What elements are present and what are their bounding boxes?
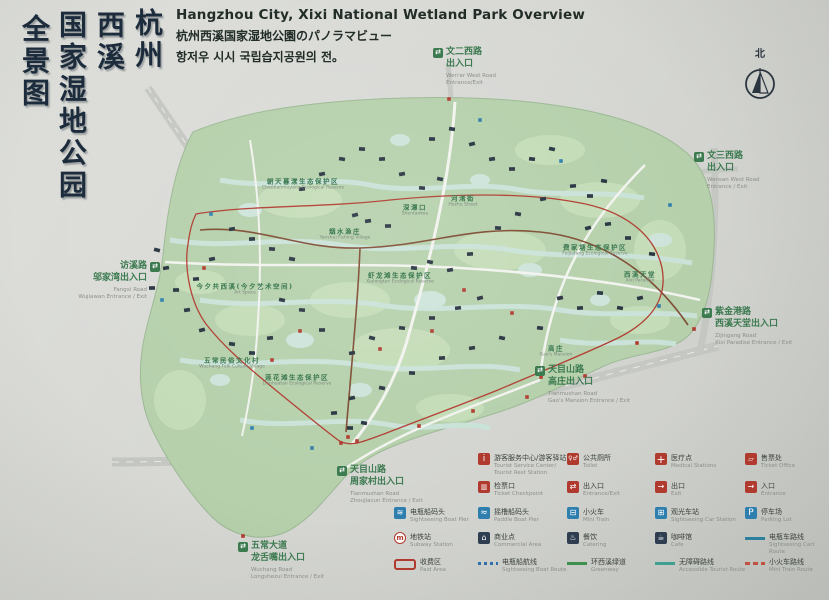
legend-label-en: Paid Area bbox=[420, 567, 446, 574]
building-mark bbox=[605, 222, 611, 226]
legend-label-en: Cafe bbox=[671, 542, 692, 549]
ticket-checkpoint-icon: ▥ bbox=[478, 481, 490, 493]
legend-item: ⊟小火车Mini Train bbox=[567, 507, 609, 524]
poi-blue-icon bbox=[160, 298, 164, 302]
legend-label-en: Commercial Area bbox=[494, 542, 541, 549]
vertical-title-overview: 全景图 bbox=[14, 14, 54, 110]
building-mark bbox=[439, 356, 445, 360]
entrance-road-name: 五常大道 bbox=[251, 542, 287, 552]
parking-icon: P bbox=[745, 507, 757, 519]
tourist-service-icon: i bbox=[478, 453, 490, 465]
map-region-label: 烟水渔庄Yanshui Fishing Village bbox=[320, 226, 371, 241]
boat-route-line bbox=[478, 562, 498, 565]
legend-item: ♀♂公共厕所Toilet bbox=[567, 453, 611, 470]
entrance-gate-name: 龙舌嘴出入口 bbox=[251, 554, 324, 564]
poi-red-icon bbox=[270, 358, 274, 362]
legend-label-zh: 出口 bbox=[671, 481, 685, 491]
building-mark bbox=[419, 186, 425, 190]
poi-red-icon bbox=[339, 441, 343, 445]
legend-item: 收费区Paid Area bbox=[394, 557, 446, 574]
poi-red-icon bbox=[346, 435, 350, 439]
building-mark bbox=[299, 308, 305, 312]
legend-item: +医疗点Medical Stations bbox=[655, 453, 716, 470]
map-region-label: 河渚街Hezhu Street bbox=[448, 193, 477, 208]
legend-label-en: Mini Train bbox=[583, 517, 609, 524]
entrance-road-name: 天目山路 bbox=[350, 466, 386, 476]
sightseeing-car-icon: ⊞ bbox=[655, 507, 667, 519]
entrance-english: Zijingang RoadXixi Paradise Entrance / E… bbox=[715, 333, 792, 348]
poi-red-icon bbox=[241, 534, 245, 538]
legend-label-zh: 摇橹船码头 bbox=[494, 507, 539, 517]
entrance-road-name: 天目山路 bbox=[548, 366, 584, 376]
commercial-icon: ⌂ bbox=[478, 532, 490, 544]
north-label: 北 bbox=[737, 50, 783, 60]
entrance-road-name: 文三西路 bbox=[707, 152, 743, 162]
building-mark bbox=[319, 328, 325, 332]
legend-label-en: Sightseeing Boat Pier bbox=[410, 517, 469, 524]
building-mark bbox=[154, 248, 161, 253]
legend-label-zh: 咖啡馆 bbox=[671, 532, 692, 542]
poi-blue-icon bbox=[668, 203, 672, 207]
legend-label-en: Toilet bbox=[583, 463, 611, 470]
poi-blue-icon bbox=[310, 446, 314, 450]
mini-train-icon: ⊟ bbox=[567, 507, 579, 519]
building-mark bbox=[570, 184, 576, 188]
legend-label-zh: 电瓶船码头 bbox=[410, 507, 469, 517]
paddle-boat-pier-icon: ≈ bbox=[478, 507, 490, 519]
poi-red-icon bbox=[355, 439, 359, 443]
map-region-label: 朝天暮漾生态保护区Chaotianmuyang Ecological Reser… bbox=[262, 176, 344, 191]
legend-item: m地铁站Subway Station bbox=[394, 532, 453, 549]
building-mark bbox=[597, 291, 603, 295]
entrance-exit-icon: ⇄ bbox=[535, 366, 545, 376]
building-mark bbox=[509, 167, 515, 171]
paid-area-symbol bbox=[394, 559, 416, 570]
legend-label-zh: 观光车站 bbox=[671, 507, 736, 517]
entrance-exit-icon: ⇄ bbox=[567, 481, 579, 493]
map-region-label: 虾龙滩生态保护区Xialongtan Ecological Reserve bbox=[366, 270, 434, 285]
legend-item: →出口Exit bbox=[655, 481, 685, 498]
legend-label-en: Exit bbox=[671, 491, 685, 498]
building-mark bbox=[385, 224, 391, 228]
legend-label-zh: 公共厕所 bbox=[583, 453, 611, 463]
poi-red-icon bbox=[525, 395, 529, 399]
page-title: Hangzhou City, Xixi National Wetland Par… bbox=[176, 7, 585, 65]
legend-item: 小火车路线Mini Train Route bbox=[745, 557, 813, 574]
building-mark bbox=[529, 157, 535, 161]
legend-item: ⊞观光车站Sightseeing Car Station bbox=[655, 507, 736, 524]
legend-label-zh: 电瓶船航线 bbox=[502, 557, 566, 567]
map-region-label: 西溪天堂Xixi Paradise bbox=[624, 269, 656, 284]
entrance-exit-icon: ⇄ bbox=[337, 466, 347, 476]
entrance-label: ⇄文二西路出入口Wen'er West RoadEntrance/Exit bbox=[433, 48, 496, 88]
entrance-label: ⇄文三西路出入口Wensan West RoadEntrance / Exit bbox=[694, 152, 760, 192]
building-mark bbox=[625, 236, 631, 240]
entrance-icon: → bbox=[745, 481, 757, 493]
entrance-gate-name: 高庄出入口 bbox=[548, 378, 630, 388]
legend-label-en: Sightseeing Boat Route bbox=[502, 567, 566, 574]
legend-label-en: Accessible Tourist Route bbox=[679, 567, 745, 574]
building-mark bbox=[249, 237, 255, 241]
legend-label-zh: 餐饮 bbox=[583, 532, 607, 542]
building-mark bbox=[455, 306, 461, 310]
mini-train-route-line bbox=[745, 562, 765, 565]
building-mark bbox=[379, 157, 385, 161]
legend-label-zh: 收费区 bbox=[420, 557, 446, 567]
building-mark bbox=[537, 326, 543, 330]
legend-item: ⇄出入口Entrance/Exit bbox=[567, 481, 620, 498]
legend-item: 电瓶车路线Sightseeing Cart Route bbox=[745, 532, 829, 556]
entrance-exit-icon: ⇄ bbox=[702, 308, 712, 318]
poi-blue-icon bbox=[559, 159, 563, 163]
legend-item: 无障碍路线Accessible Tourist Route bbox=[655, 557, 745, 574]
entrance-gate-name: 西溪天堂出入口 bbox=[715, 320, 792, 330]
compass: 北 bbox=[737, 50, 783, 110]
park-sign-board: Hangzhou City, Xixi National Wetland Par… bbox=[0, 0, 829, 600]
cafe-icon: ☕ bbox=[655, 532, 667, 544]
north-arrow-icon bbox=[737, 60, 783, 106]
entrance-exit-icon: ⇄ bbox=[150, 262, 160, 272]
entrance-english: Tianmushan RoadGao's Mansion Entrance / … bbox=[548, 391, 630, 406]
entrance-label: ⇄紫金港路西溪天堂出入口Zijingang RoadXixi Paradise … bbox=[702, 308, 792, 348]
building-mark bbox=[267, 336, 273, 340]
building-mark bbox=[359, 147, 365, 151]
legend-label-zh: 环西溪绿道 bbox=[591, 557, 626, 567]
legend-item: ≈摇橹船码头Paddle Boat Pier bbox=[478, 507, 539, 524]
legend-item: 环西溪绿道Greenway bbox=[567, 557, 626, 574]
vertical-title-national-wetland-park: 国家湿地公园 bbox=[51, 10, 91, 202]
medical-icon: + bbox=[655, 453, 667, 465]
title-japanese: 杭州西溪国家湿地公園のパノラマビュー bbox=[176, 27, 585, 44]
legend-label-zh: 无障碍路线 bbox=[679, 557, 745, 567]
legend-label-en: Catering bbox=[583, 542, 607, 549]
entrance-exit-icon: ⇄ bbox=[238, 542, 248, 552]
cart-route-line bbox=[745, 537, 765, 540]
building-mark bbox=[269, 247, 275, 251]
legend-label-zh: 游客服务中心/游客驿站 bbox=[494, 453, 566, 463]
sightseeing-boat-pier-icon: ≋ bbox=[394, 507, 406, 519]
legend-item: 电瓶船航线Sightseeing Boat Route bbox=[478, 557, 566, 574]
legend-item: ⌂商业点Commercial Area bbox=[478, 532, 541, 549]
poi-blue-icon bbox=[209, 212, 213, 216]
legend-label-zh: 检票口 bbox=[494, 481, 543, 491]
legend-label-en: Sightseeing Car Station bbox=[671, 517, 736, 524]
entrance-label: 访溪路⇄邬家湾出入口Fangxi RoadWujiawan Entrance /… bbox=[78, 262, 160, 302]
legend-label-en: Parking Lot bbox=[761, 517, 792, 524]
entrance-label: ⇄五常大道龙舌嘴出入口Wuchang RoadLongshezui Entran… bbox=[238, 542, 324, 582]
building-mark bbox=[429, 137, 435, 141]
building-mark bbox=[399, 326, 405, 330]
map-region-label: 深潭口Shentankou bbox=[402, 202, 429, 217]
legend-item: i游客服务中心/游客驿站Tourist Service Center/ Tour… bbox=[478, 453, 566, 477]
title-english: Hangzhou City, Xixi National Wetland Par… bbox=[176, 7, 585, 23]
legend-label-zh: 商业点 bbox=[494, 532, 541, 542]
legend-label-zh: 小火车 bbox=[583, 507, 609, 517]
entrance-label: ⇄天目山路周家村出入口Tianmushan RoadZhoujiacun Ent… bbox=[337, 466, 423, 506]
legend-item: ≋电瓶船码头Sightseeing Boat Pier bbox=[394, 507, 469, 524]
map-region-label: 费家塘生态保护区Feijiatang Ecological Reserve bbox=[562, 242, 627, 257]
poi-red-icon bbox=[298, 329, 302, 333]
legend-item: ♨餐饮Catering bbox=[567, 532, 607, 549]
legend-item: ☕咖啡馆Cafe bbox=[655, 532, 692, 549]
legend-label-en: Ticket Checkpoint bbox=[494, 491, 543, 498]
poi-blue-icon bbox=[657, 304, 661, 308]
legend-label-en: Sightseeing Cart Route bbox=[769, 542, 829, 556]
building-mark bbox=[173, 288, 179, 292]
legend-label-en: Tourist Service Center/ Tourist Rest Sta… bbox=[494, 463, 566, 477]
building-mark bbox=[429, 316, 435, 320]
vertical-title-hangzhou: 杭州 bbox=[127, 8, 167, 72]
legend-label-en: Greenway bbox=[591, 567, 626, 574]
building-mark bbox=[649, 252, 655, 256]
poi-red-icon bbox=[447, 97, 451, 101]
legend-label-en: Subway Station bbox=[410, 542, 453, 549]
poi-blue-icon bbox=[478, 118, 482, 122]
poi-red-icon bbox=[202, 266, 206, 270]
building-mark bbox=[587, 194, 593, 198]
poi-red-icon bbox=[471, 409, 475, 413]
poi-red-icon bbox=[417, 424, 421, 428]
entrance-english: Wensan West RoadEntrance / Exit bbox=[707, 177, 760, 192]
legend-item: ▥检票口Ticket Checkpoint bbox=[478, 481, 543, 498]
building-mark bbox=[409, 371, 415, 375]
entrance-english: Fangxi RoadWujiawan Entrance / Exit bbox=[78, 287, 147, 302]
legend-label-zh: 小火车路线 bbox=[769, 557, 813, 567]
legend-label-zh: 地铁站 bbox=[410, 532, 453, 542]
title-korean: 항저우 시시 국립습지공원의 전。 bbox=[176, 48, 585, 65]
park-area bbox=[140, 97, 714, 538]
map-region-label: 莲花滩生态保护区Lianhuatan Ecological Reserve bbox=[263, 372, 332, 387]
legend-label-zh: 电瓶车路线 bbox=[769, 532, 829, 542]
entrance-english: Wen'er West RoadEntrance/Exit bbox=[446, 73, 496, 88]
exit-icon: → bbox=[655, 481, 667, 493]
poi-red-icon bbox=[462, 288, 466, 292]
ticket-office-icon: ▱ bbox=[745, 453, 757, 465]
building-mark bbox=[331, 411, 337, 415]
legend-item: →入口Entrance bbox=[745, 481, 786, 498]
entrance-road-name: 文二西路 bbox=[446, 48, 482, 58]
legend-label-en: Entrance/Exit bbox=[583, 491, 620, 498]
vertical-title-xixi: 西溪 bbox=[89, 10, 129, 74]
legend-label-zh: 入口 bbox=[761, 481, 786, 491]
legend-label-zh: 停车场 bbox=[761, 507, 792, 517]
legend-label-en: Mini Train Route bbox=[769, 567, 813, 574]
entrance-road-name: 紫金港路 bbox=[715, 308, 751, 318]
entrance-exit-icon: ⇄ bbox=[433, 48, 443, 58]
map-region-label: 五常民俗文化村Wuchang Folk Culture Village bbox=[199, 355, 265, 370]
poi-red-icon bbox=[378, 347, 382, 351]
poi-red-icon bbox=[430, 329, 434, 333]
entrance-gate-name: 出入口 bbox=[446, 60, 496, 70]
poi-red-icon bbox=[510, 311, 514, 315]
entrance-english: Wuchang RoadLongshezui Entrance / Exit bbox=[251, 567, 324, 582]
greenway-line bbox=[567, 562, 587, 565]
building-mark bbox=[495, 226, 501, 230]
map-region-label: 今夕共西溪(今夕艺术空间)Art Space bbox=[197, 281, 294, 296]
building-mark bbox=[347, 426, 353, 430]
map-region-label: 高庄Gao's Mansion bbox=[540, 343, 573, 358]
entrance-gate-name: 周家村出入口 bbox=[350, 478, 423, 488]
legend-item: P停车场Parking Lot bbox=[745, 507, 792, 524]
legend-label-en: Ticket Office bbox=[761, 463, 795, 470]
legend-label-zh: 出入口 bbox=[583, 481, 620, 491]
entrance-english: Tianmushan RoadZhoujiacun Entrance / Exi… bbox=[350, 491, 423, 506]
toilet-icon: ♀♂ bbox=[567, 453, 579, 465]
entrance-road-name: 访溪路 bbox=[120, 262, 147, 272]
legend-label-en: Medical Stations bbox=[671, 463, 716, 470]
building-mark bbox=[467, 252, 473, 256]
entrance-exit-icon: ⇄ bbox=[694, 152, 704, 162]
poi-red-icon bbox=[635, 341, 639, 345]
entrance-label: ⇄天目山路高庄出入口Tianmushan RoadGao's Mansion E… bbox=[535, 366, 630, 406]
legend-label-zh: 售票处 bbox=[761, 453, 795, 463]
legend-item: ▱售票处Ticket Office bbox=[745, 453, 795, 470]
subway-icon: m bbox=[394, 532, 406, 544]
entrance-gate-name: 邬家湾出入口 bbox=[78, 274, 147, 284]
entrance-gate-name: 出入口 bbox=[707, 164, 760, 174]
legend-label-zh: 医疗点 bbox=[671, 453, 716, 463]
poi-red-icon bbox=[692, 327, 696, 331]
legend-label-en: Entrance bbox=[761, 491, 786, 498]
building-mark bbox=[577, 306, 583, 310]
catering-icon: ♨ bbox=[567, 532, 579, 544]
accessible-route-line bbox=[655, 562, 675, 565]
legend-label-en: Paddle Boat Pier bbox=[494, 517, 539, 524]
poi-blue-icon bbox=[250, 426, 254, 430]
